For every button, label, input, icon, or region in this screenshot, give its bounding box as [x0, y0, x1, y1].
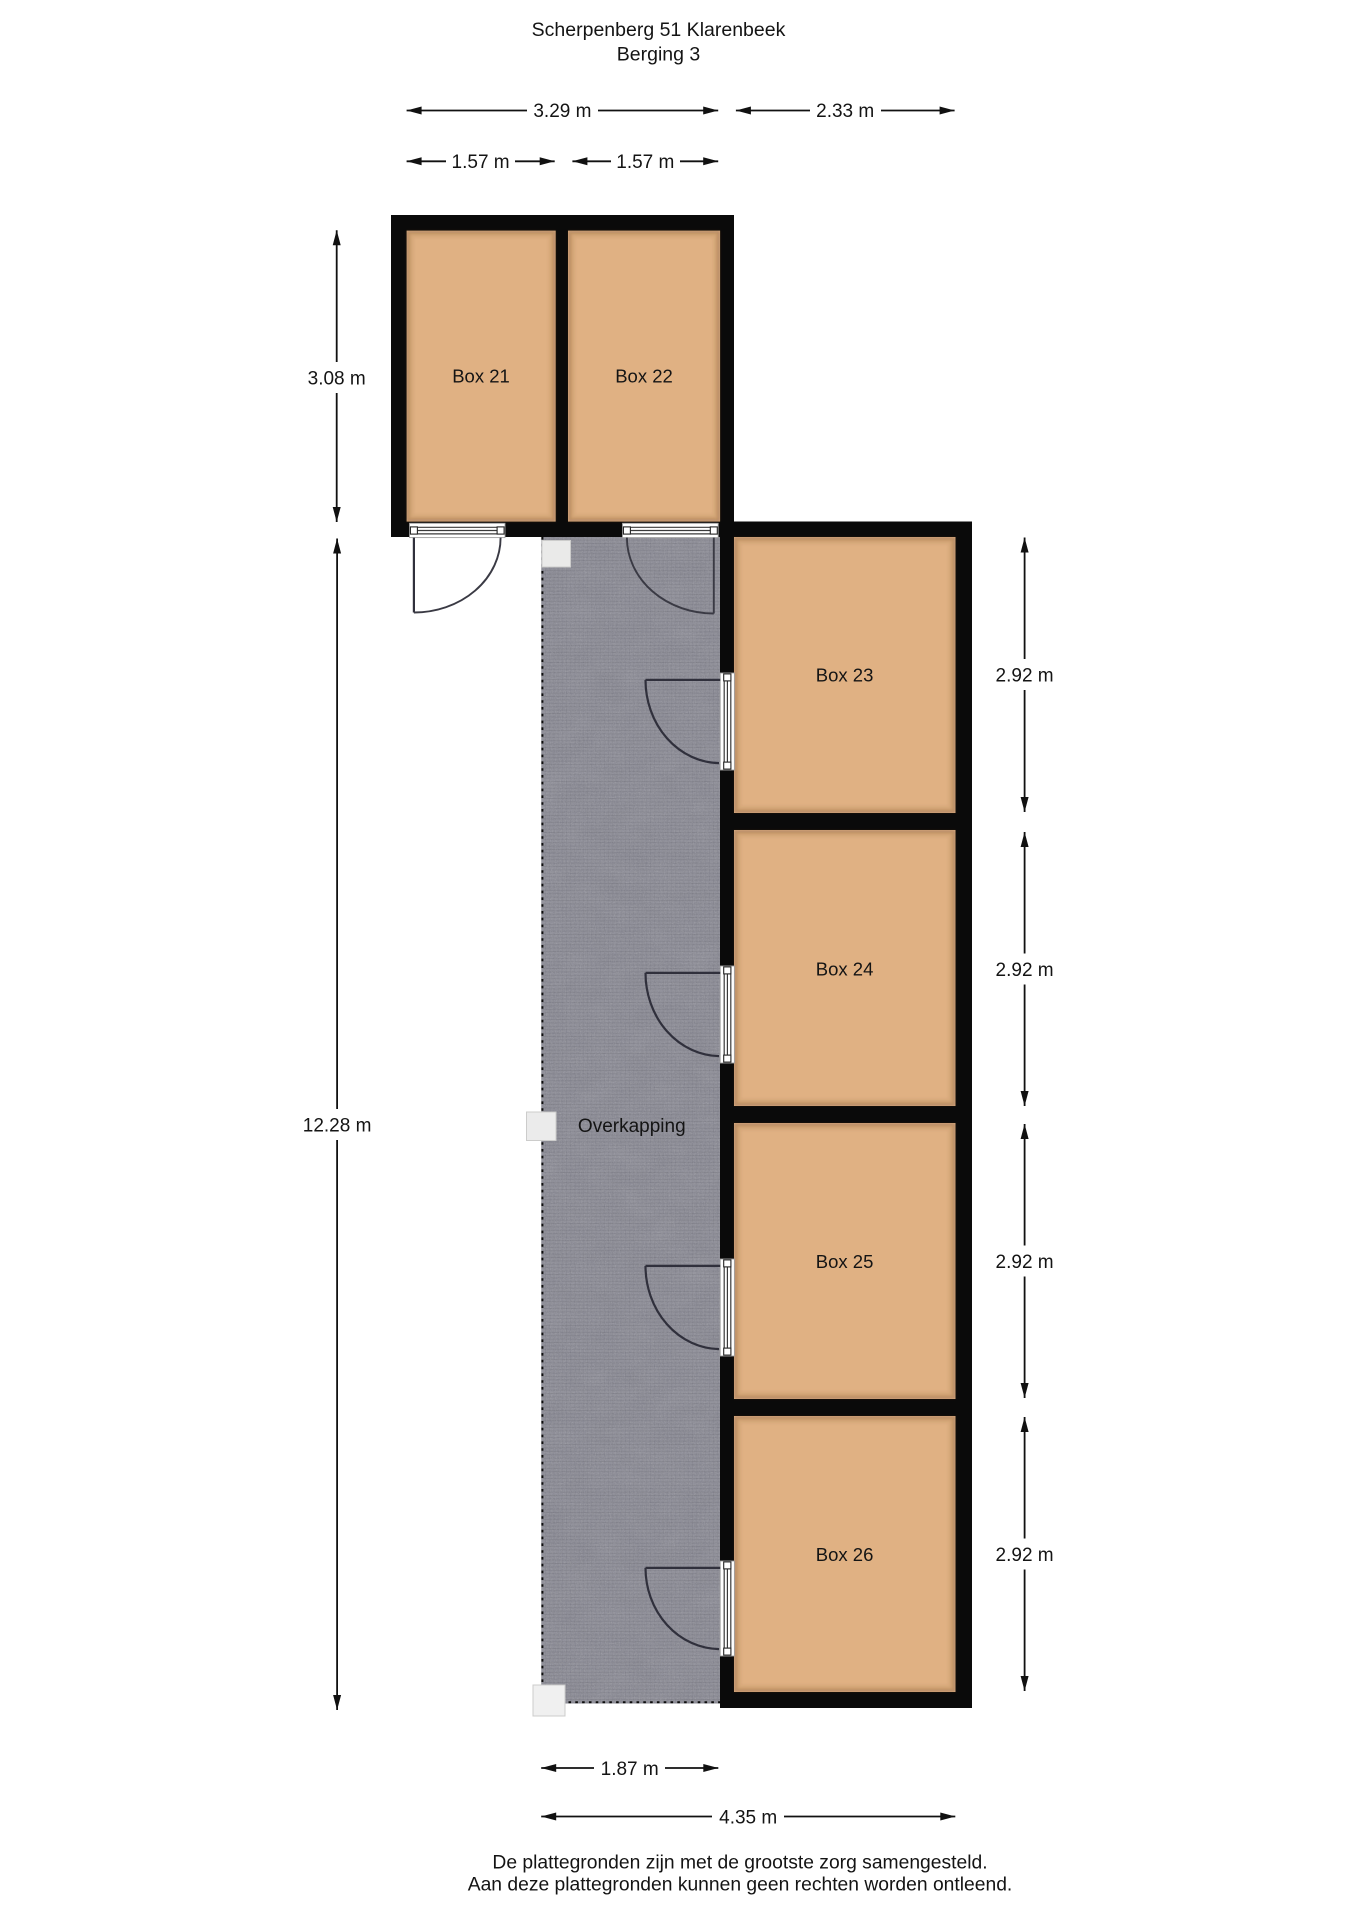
svg-text:2.92 m: 2.92 m — [996, 1545, 1054, 1566]
svg-text:Scherpenberg 51 Klarenbeek: Scherpenberg 51 Klarenbeek — [532, 19, 786, 41]
svg-text:Box 23: Box 23 — [816, 665, 874, 686]
svg-text:2.92 m: 2.92 m — [996, 666, 1054, 687]
svg-text:2.92 m: 2.92 m — [996, 960, 1054, 981]
svg-text:Aan deze plattegronden kunnen: Aan deze plattegronden kunnen geen recht… — [468, 1874, 1013, 1895]
svg-text:4.35 m: 4.35 m — [719, 1807, 777, 1828]
svg-text:Box 25: Box 25 — [816, 1251, 874, 1272]
svg-text:Box 21: Box 21 — [452, 366, 510, 387]
svg-text:Box 24: Box 24 — [816, 959, 874, 980]
svg-text:Box 22: Box 22 — [615, 366, 673, 387]
svg-text:2.92 m: 2.92 m — [996, 1252, 1054, 1273]
svg-text:2.33 m: 2.33 m — [816, 101, 874, 122]
svg-text:3.29 m: 3.29 m — [533, 101, 591, 122]
svg-text:3.08 m: 3.08 m — [308, 369, 366, 390]
svg-text:12.28 m: 12.28 m — [303, 1116, 372, 1137]
svg-text:Box 26: Box 26 — [816, 1544, 874, 1565]
svg-text:1.87 m: 1.87 m — [601, 1759, 659, 1780]
svg-text:De plattegronden zijn met de g: De plattegronden zijn met de grootste zo… — [492, 1853, 987, 1874]
svg-text:1.57 m: 1.57 m — [616, 152, 674, 173]
svg-text:1.57 m: 1.57 m — [452, 152, 510, 173]
svg-text:Berging 3: Berging 3 — [617, 44, 700, 66]
svg-text:Overkapping: Overkapping — [578, 1116, 686, 1137]
